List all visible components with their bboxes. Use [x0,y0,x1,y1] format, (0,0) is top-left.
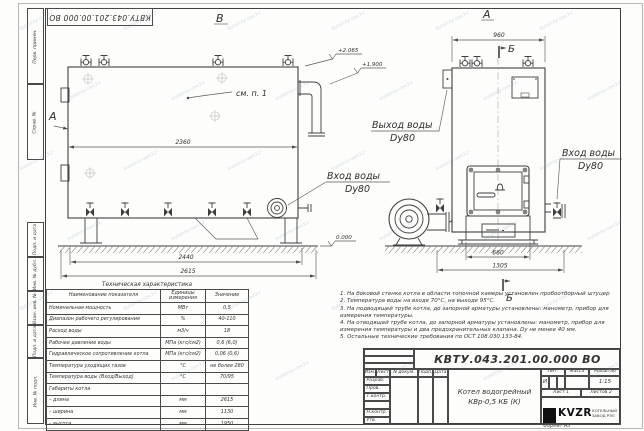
view-a-arrow: А [48,110,68,129]
inlet-water-label-front: Вход воды Dy80 [557,148,622,199]
outlet-pipe-icon [298,80,325,136]
technical-notes: 1. На боковой стенке котла в области топ… [340,291,619,342]
row-nkontr: Н.контр. [364,409,390,417]
col-dokum: N докум. [390,369,418,377]
safety-valve-icons-top [81,56,293,67]
see-note-callout: см. п. 1 [187,89,267,99]
see-note-text: см. п. 1 [236,89,267,98]
note-line: 1. На боковой стенке котла в области топ… [340,291,619,298]
table-row: Расход водым3/ч18 [47,326,249,338]
supports [80,218,302,243]
tech-table-title: Техническая характеристика [46,282,248,288]
view-a-label: А [482,8,491,21]
tech-table-body: Номинальная мощностьМВт0,5Диапазон рабоч… [47,303,249,431]
table-row: – ширинамм1130 [47,407,249,419]
table-row: Габариты котла [47,384,249,396]
col-list: Лист [376,369,390,377]
tech-table: Наименование показателя Единицы измерени… [46,289,249,431]
outlet-water-label: Выход воды Dy80 [371,90,447,144]
ground-hatch-side [58,246,318,253]
svg-text:Dy80: Dy80 [578,161,603,172]
lit-header: Лит. [541,369,565,376]
table-row: Температура уходящих газов°Сне более 280 [47,360,249,372]
inlet-valve-front [545,203,565,218]
lit-value: И [541,376,549,389]
table-row: – длинамм2615 [47,395,249,407]
door-latch-icon [495,184,505,190]
title-block: КВТУ.043.201.00.000 ВО Изм. Лист N докум… [363,348,620,424]
col-podp: Подп. [418,369,433,377]
row-razrab: Разраб. [364,377,390,385]
svg-text:960: 960 [493,32,505,39]
note-line: 2. Температура воды на входе 70°С, на вы… [340,298,619,305]
kvzr-logo-subtext: КОТЕЛЬНЫЙ ЗАВОД РЭП [592,409,617,419]
massa-header: Масса [565,369,589,376]
table-row: Диапазон рабочего регулирования%40-110 [47,314,249,326]
kvzr-logo-text: KVZR [558,407,592,419]
svg-text:2615: 2615 [180,268,195,275]
note-line: 4. На отводящей трубе котла, до запорной… [340,320,619,334]
svg-text:Dy80: Dy80 [345,184,370,195]
ground-hatch-front [385,246,582,253]
elevation-top: +2.065 [305,48,362,66]
svg-text:Dy80: Dy80 [390,133,415,144]
kvzr-logo-mark [543,408,556,423]
table-row: Номинальная мощностьМВт0,5 [47,303,249,315]
row-tkontr: Т.контр. [364,393,390,401]
masshtab-header: Масштаб [589,369,621,376]
table-row: – высотамм1950 [47,418,249,430]
col-data: Дата [433,369,448,377]
col-header-name: Наименование показателя [47,290,161,303]
sheets-cell: Листов 2 [581,389,621,397]
tech-characteristics: Техническая характеристика Наименование … [46,282,248,431]
svg-text:+1.900: +1.900 [362,62,383,68]
document-name: Котел водогрейный КВр-0,5 КБ (К) [448,369,541,425]
col-izm: Изм. [364,369,376,377]
col-header-unit: Единицы измерения [161,290,206,303]
svg-text:1305: 1305 [492,263,507,270]
col-header-value: Значение [206,290,249,303]
side-view: В см. п. 1 2360 [48,12,325,279]
row-utv: Утв. [364,417,390,425]
row-prov: Пров. [364,385,390,393]
svg-text:2360: 2360 [175,139,190,146]
inlet-flange-icon [268,199,287,218]
sheet-cell: Лист 1 [541,389,581,397]
elevation-outlet: +1.900 [330,62,386,84]
table-row: Рабочее давление водыМПа (кгс/см2)0,6 (6… [47,337,249,349]
section-mark-top: Б [499,44,515,58]
drain-valve-icons [86,203,251,218]
table-row: Гидравлическое сопротивление котлаМПа (к… [47,349,249,361]
control-box-icon [512,77,538,98]
svg-text:Б: Б [508,44,515,55]
dim-2360: 2360 [69,139,297,147]
note-line: 5. Остальные технические требования по О… [340,334,619,341]
front-view: А 960 Б [385,8,582,304]
elevation-marks: +2.065 +1.900 0.000 [305,48,386,246]
fan-line-valve-icon [436,199,444,214]
note-line: 3. На подводящей трубе котла, до запорно… [340,306,619,320]
svg-text:Вход воды: Вход воды [562,148,616,159]
svg-text:660: 660 [492,250,504,257]
tech-table-header: Наименование показателя Единицы измерени… [47,290,249,303]
boiler-body-front [452,68,545,232]
title-block-designation: КВТУ.043.201.00.000 ВО [414,349,621,369]
outlet-flange-front [443,70,452,88]
row-blank [364,401,390,409]
door-handle-icon [477,193,495,197]
view-b-label: В [216,12,224,25]
svg-text:0.000: 0.000 [336,235,352,241]
svg-text:Вход воды: Вход воды [327,171,381,182]
svg-text:2440: 2440 [178,254,193,261]
svg-text:А: А [48,110,57,123]
scale-value: 1:15 [589,376,621,389]
table-row: Температура воды (Вход/Выход)°С70/95 [47,372,249,384]
svg-text:Выход воды: Выход воды [372,120,433,131]
inlet-water-label-side: Вход воды Dy80 [288,171,390,205]
elevation-ground: 0.000 [320,235,356,246]
svg-text:+2.065: +2.065 [338,48,359,54]
safety-valve-icons-front [460,57,533,68]
